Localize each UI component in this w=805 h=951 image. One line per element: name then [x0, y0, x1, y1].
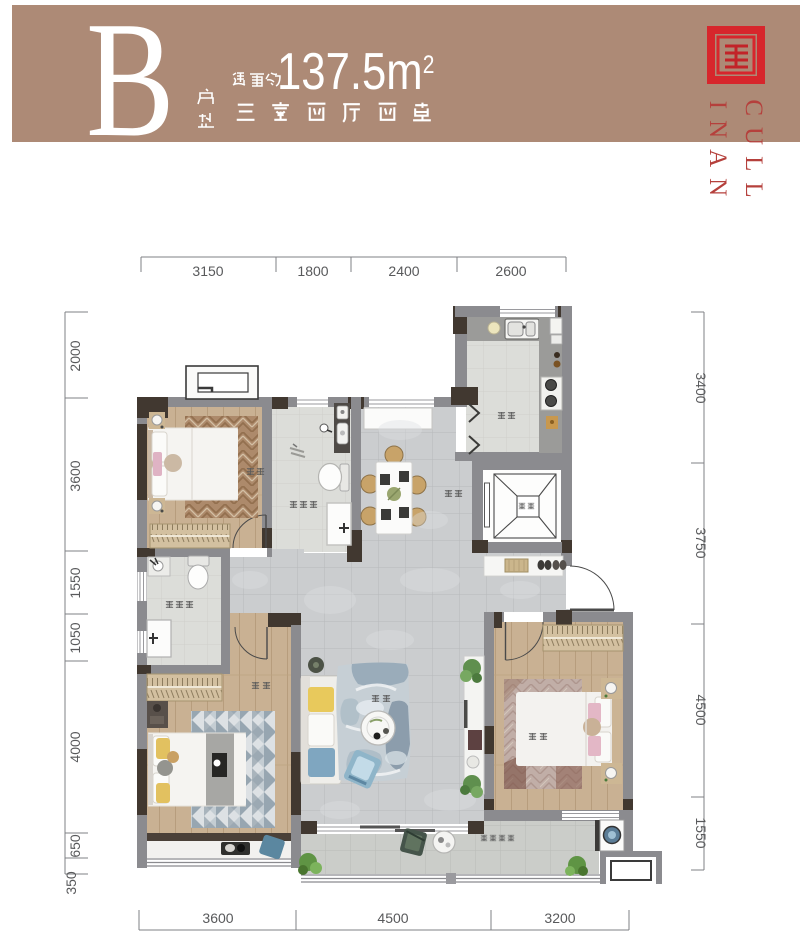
svg-text:1550: 1550 — [67, 567, 83, 598]
svg-text:3150: 3150 — [192, 263, 223, 279]
svg-text:3750: 3750 — [693, 527, 709, 558]
svg-text:1550: 1550 — [693, 817, 709, 848]
svg-text:1800: 1800 — [297, 263, 328, 279]
svg-text:4000: 4000 — [67, 731, 83, 762]
svg-text:2600: 2600 — [495, 263, 526, 279]
svg-text:1050: 1050 — [67, 622, 83, 653]
svg-text:3400: 3400 — [693, 372, 709, 403]
svg-text:650: 650 — [67, 834, 83, 858]
svg-text:2000: 2000 — [67, 340, 83, 371]
svg-text:350: 350 — [63, 871, 79, 895]
svg-text:3200: 3200 — [544, 910, 575, 926]
svg-text:4500: 4500 — [693, 694, 709, 725]
svg-text:3600: 3600 — [202, 910, 233, 926]
svg-text:3600: 3600 — [67, 460, 83, 491]
svg-text:2400: 2400 — [388, 263, 419, 279]
svg-text:4500: 4500 — [377, 910, 408, 926]
